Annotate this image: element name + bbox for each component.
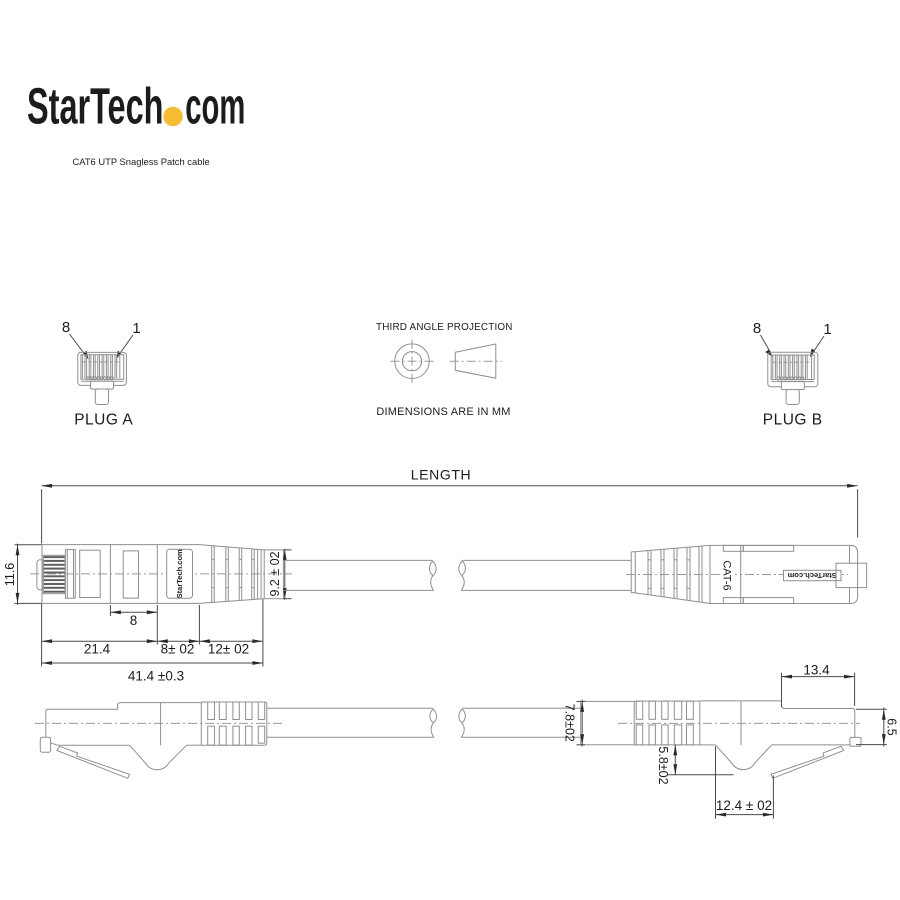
- svg-text:com: com: [185, 78, 245, 135]
- svg-text:12± 02: 12± 02: [208, 642, 249, 657]
- svg-text:PLUG A: PLUG A: [74, 412, 133, 429]
- svg-text:8: 8: [62, 319, 70, 336]
- svg-text:DIMENSIONS ARE IN MM: DIMENSIONS ARE IN MM: [376, 406, 510, 418]
- svg-text:6.5: 6.5: [884, 718, 898, 735]
- svg-text:11.6: 11.6: [3, 563, 17, 586]
- svg-text:1: 1: [823, 321, 831, 338]
- svg-text:7.8±02: 7.8±02: [563, 704, 577, 742]
- svg-text:8: 8: [753, 320, 761, 337]
- svg-text:StarTech.com: StarTech.com: [787, 571, 836, 580]
- svg-text:8: 8: [130, 613, 138, 628]
- svg-text:5.8±02: 5.8±02: [656, 746, 670, 784]
- svg-text:StarTech: StarTech: [27, 78, 164, 135]
- svg-text:8± 02: 8± 02: [161, 642, 195, 657]
- svg-text:21.4: 21.4: [84, 642, 111, 657]
- svg-text:12.4 ± 02: 12.4 ± 02: [716, 798, 772, 813]
- svg-text:CAT-6: CAT-6: [721, 560, 733, 590]
- svg-text:THIRD ANGLE PROJECTION: THIRD ANGLE PROJECTION: [376, 322, 513, 333]
- svg-text:1: 1: [132, 320, 140, 337]
- svg-text:PLUG B: PLUG B: [763, 412, 823, 429]
- svg-text:9.2 ± 02: 9.2 ± 02: [268, 551, 282, 596]
- svg-text:CAT6 UTP Snagless Patch cable: CAT6 UTP Snagless Patch cable: [73, 156, 210, 167]
- svg-text:41.4 ±0.3: 41.4 ±0.3: [128, 669, 184, 684]
- svg-text:LENGTH: LENGTH: [411, 467, 471, 483]
- svg-text:StarTech.com: StarTech.com: [175, 549, 184, 598]
- svg-text:13.4: 13.4: [803, 663, 830, 678]
